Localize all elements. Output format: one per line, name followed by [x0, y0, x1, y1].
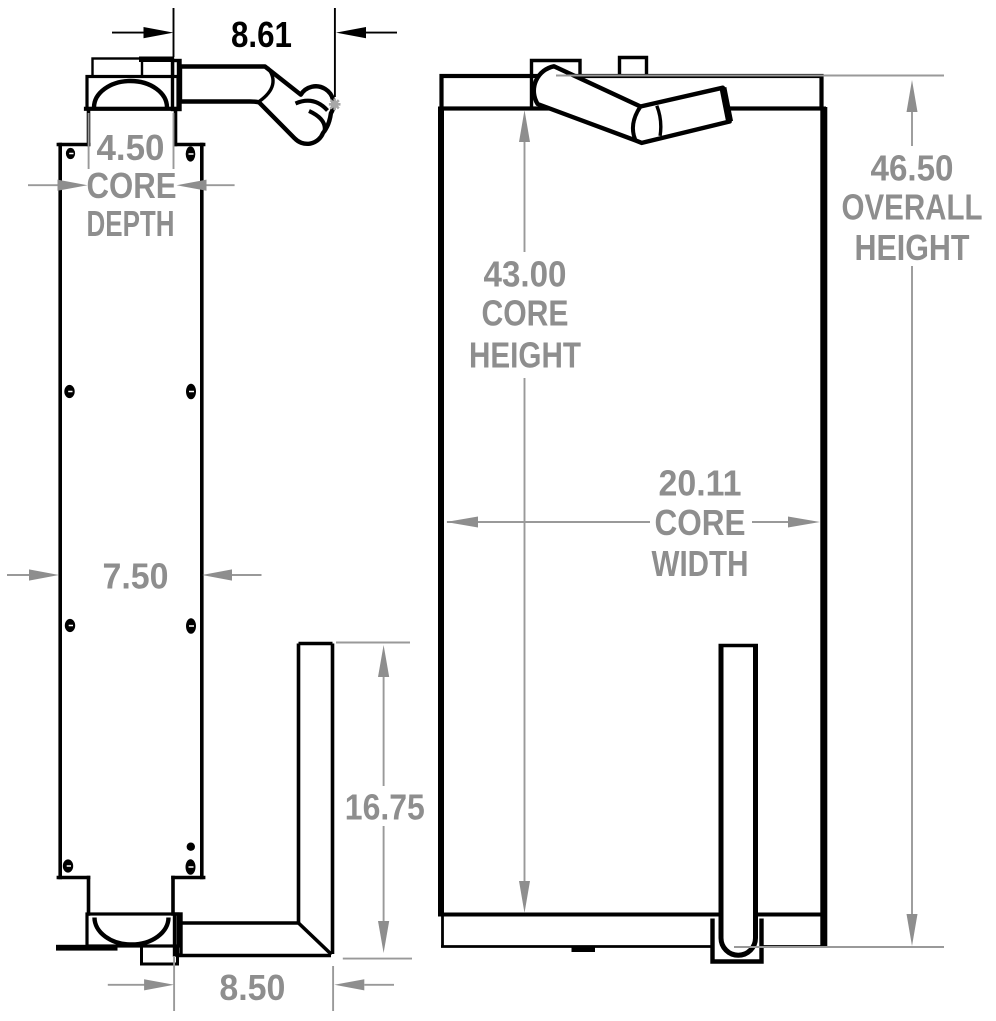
svg-text:8.61: 8.61 — [231, 14, 292, 55]
svg-text:7.50: 7.50 — [103, 556, 169, 597]
svg-text:WIDTH: WIDTH — [652, 543, 749, 584]
svg-text:CORE: CORE — [655, 502, 746, 543]
svg-text:46.50: 46.50 — [871, 148, 954, 189]
svg-text:OVERALL: OVERALL — [842, 187, 983, 228]
svg-text:HEIGHT: HEIGHT — [469, 335, 581, 376]
svg-text:8.50: 8.50 — [219, 967, 285, 1008]
svg-text:DEPTH: DEPTH — [87, 203, 175, 244]
svg-text:CORE: CORE — [87, 165, 177, 206]
svg-text:20.11: 20.11 — [659, 463, 742, 504]
svg-text:16.75: 16.75 — [345, 787, 425, 828]
svg-text:CORE: CORE — [482, 293, 569, 334]
svg-text:4.50: 4.50 — [97, 127, 165, 168]
svg-text:43.00: 43.00 — [484, 254, 567, 295]
svg-text:HEIGHT: HEIGHT — [855, 227, 970, 268]
